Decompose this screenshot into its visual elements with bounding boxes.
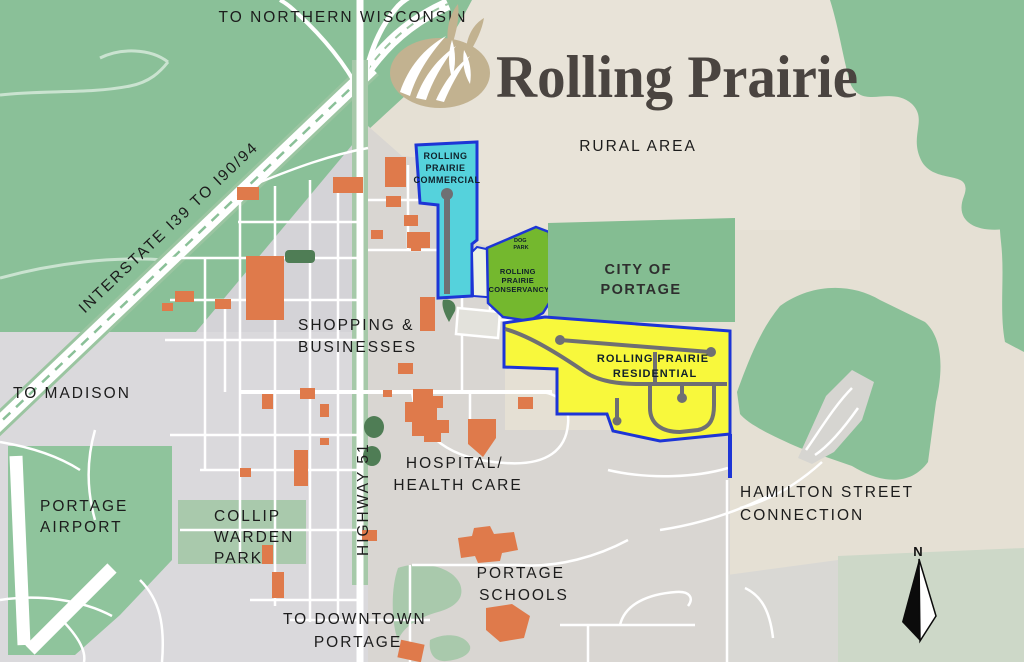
rural-area-label: RURAL AREA (579, 138, 697, 155)
building (246, 256, 284, 320)
culdesac (613, 417, 622, 426)
to-madison-label: TO MADISON (13, 385, 131, 402)
commercial-culdesac (441, 188, 453, 200)
building (262, 394, 273, 409)
brand-name: Rolling Prairie (496, 44, 858, 110)
building (383, 390, 392, 397)
light-rural-patch (460, 0, 860, 230)
building (386, 196, 401, 207)
building (407, 232, 430, 248)
building (300, 388, 315, 399)
building (272, 572, 284, 598)
tree-patch (285, 250, 315, 263)
building (518, 397, 533, 409)
building (371, 230, 383, 239)
building (320, 404, 329, 417)
highway-51-label: HIGHWAY 51 (355, 442, 372, 556)
tree-patch (364, 416, 384, 438)
compass-north-letter: N (913, 544, 922, 559)
building (398, 363, 413, 374)
building-pad-outline (456, 308, 500, 338)
culdesac (555, 335, 565, 345)
building (237, 187, 259, 200)
building (162, 303, 173, 311)
building (404, 215, 418, 226)
building (385, 157, 406, 187)
to-northern-wisconsin-label: TO NORTHERN WISCONSIN (219, 9, 468, 26)
building (333, 177, 363, 193)
dog-park-label: DOG PARK (513, 238, 528, 251)
zone-city-of-portage: CITY OF PORTAGE (548, 218, 735, 322)
building (420, 297, 435, 331)
building (320, 438, 329, 445)
building (215, 299, 231, 309)
building (294, 450, 308, 486)
map-canvas: ROLLING PRAIRIE COMMERCIAL DOG PARK ROLL… (0, 0, 1024, 662)
building (262, 545, 273, 564)
gray-area-bottom (727, 560, 838, 662)
building (240, 468, 251, 477)
building (175, 291, 194, 302)
culdesac (677, 393, 687, 403)
